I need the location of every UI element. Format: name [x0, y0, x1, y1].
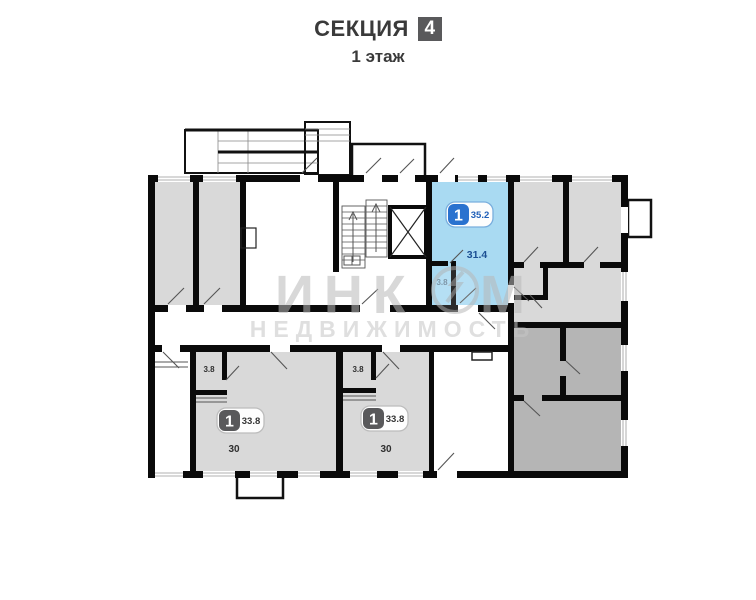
- bottom-middle-room-area: 30: [380, 444, 392, 455]
- balcony-right: [628, 200, 651, 237]
- floor-label: 1 этаж: [0, 47, 756, 67]
- bottom-middle-apartment-badge[interactable]: 1 33.8: [361, 406, 408, 431]
- highlighted-balcony-area: 3.8: [436, 278, 448, 287]
- bottom-left-apartment-badge[interactable]: 1 33.8: [217, 408, 264, 433]
- watermark: ИНК М НЕДВИЖИМОСТЬ: [250, 265, 536, 342]
- bottom-left-balcony-area: 3.8: [203, 365, 215, 374]
- highlighted-room-area: 31.4: [467, 249, 488, 261]
- badge-rooms-count: 1: [369, 412, 378, 429]
- duct-notch: [472, 352, 492, 360]
- stairwell: [241, 200, 387, 268]
- cellar-entry: [237, 476, 283, 498]
- plan-header: СЕКЦИЯ 4 1 этаж: [0, 16, 756, 67]
- badge-rooms-count: 1: [454, 208, 463, 225]
- badge-total-area: 33.8: [386, 414, 405, 425]
- bottom-middle-balcony-area: 3.8: [352, 365, 364, 374]
- section-number-badge: 4: [418, 17, 442, 41]
- watermark-subtitle: НЕДВИЖИМОСТЬ: [250, 316, 536, 342]
- elevator: [390, 207, 426, 257]
- stair-treads: [342, 206, 387, 260]
- badge-total-area: 35.2: [471, 210, 490, 221]
- apartment-bottom-left-region[interactable]: [196, 352, 336, 471]
- floor-plan: ИНК М НЕДВИЖИМОСТЬ 1 35.2 31.4 3.8 1 33.…: [0, 0, 756, 600]
- bottom-left-room-area: 30: [228, 444, 240, 455]
- badge-rooms-count: 1: [225, 414, 234, 431]
- highlighted-apartment-badge[interactable]: 1 35.2: [446, 202, 493, 227]
- badge-total-area: 33.8: [242, 416, 261, 427]
- stair-up-arrows: [349, 204, 380, 262]
- section-title: СЕКЦИЯ: [314, 16, 409, 42]
